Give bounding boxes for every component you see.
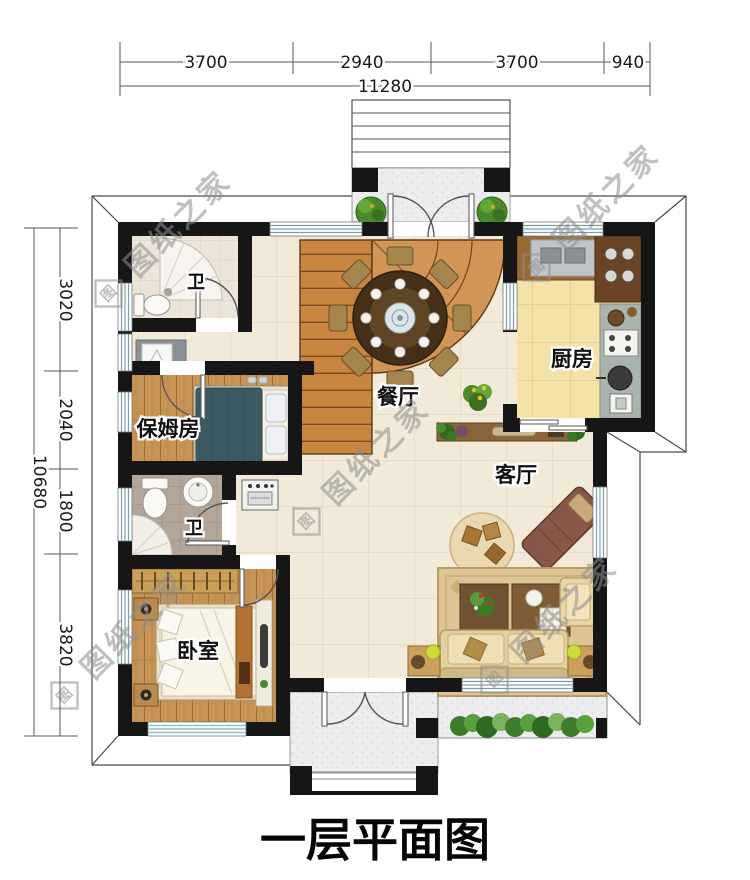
window (118, 334, 132, 371)
svg-text:图: 图 (53, 684, 76, 707)
toilet (142, 478, 168, 518)
window (593, 487, 607, 558)
dimension-label: 3700 (184, 53, 227, 73)
window (270, 222, 362, 236)
lamp (426, 645, 440, 659)
slippers (259, 377, 267, 383)
porch-column (416, 766, 438, 794)
hall-appliance (242, 480, 278, 510)
bed-runner-end (239, 662, 250, 684)
entry-steps (352, 100, 510, 168)
dimension-top: 3700 2940 3700 940 11280 (120, 42, 650, 97)
coffee-table (460, 584, 508, 636)
bedroom-cabinet (256, 600, 272, 706)
nightstand (134, 684, 158, 706)
dimension-label: 1800 (55, 489, 75, 532)
porch-column (290, 766, 312, 794)
porch-column (484, 168, 510, 192)
nanny-bed (194, 377, 292, 464)
room-label-bath-lower: 卫 (185, 518, 203, 539)
stove-unit (595, 236, 641, 302)
dimension-label: 2040 (55, 398, 75, 441)
kitchen-appliance-strip (596, 304, 641, 418)
dimension-label: 3820 (55, 623, 75, 666)
porch-column (352, 168, 378, 192)
lamp (567, 645, 581, 659)
window (118, 488, 132, 541)
bed-runner (236, 606, 252, 698)
window (462, 678, 573, 692)
floor-plan-drawing: 餐厅 厨房 客厅 保姆房 卧室 卫 卫 图 图纸之家 图 图纸之家 图 图纸之家… (0, 0, 750, 880)
room-label-bedroom: 卧室 (177, 639, 219, 663)
rear-porch (290, 692, 438, 795)
room-label-kitchen: 厨房 (551, 347, 593, 371)
side-table (408, 645, 440, 676)
window (118, 392, 132, 432)
dimension-label: 3020 (55, 278, 75, 321)
room-label-nanny: 保姆房 (136, 417, 200, 441)
sink (183, 477, 213, 507)
window (148, 722, 246, 736)
dimension-label: 3700 (495, 53, 538, 73)
dimension-label: 2940 (340, 53, 383, 73)
terrace (416, 692, 607, 738)
floor-plan-page: 餐厅 厨房 客厅 保姆房 卧室 卫 卫 图 图纸之家 图 图纸之家 图 图纸之家… (0, 0, 750, 880)
plan-title: 一层平面图 (260, 813, 490, 867)
room-label-living: 客厅 (495, 463, 537, 487)
dimension-total-label: 11280 (358, 77, 412, 97)
wok-burner (608, 366, 632, 390)
dimension-total-label: 10680 (29, 455, 49, 509)
window (503, 283, 517, 330)
svg-text:图: 图 (97, 282, 120, 305)
entry-porch (352, 168, 510, 227)
slippers (248, 377, 256, 383)
toilet (134, 294, 170, 316)
dimension-label: 940 (612, 53, 644, 73)
room-label-bath-upper: 卫 (187, 272, 205, 293)
dimension-left: 3020 2040 1800 3820 10680 (24, 228, 78, 736)
